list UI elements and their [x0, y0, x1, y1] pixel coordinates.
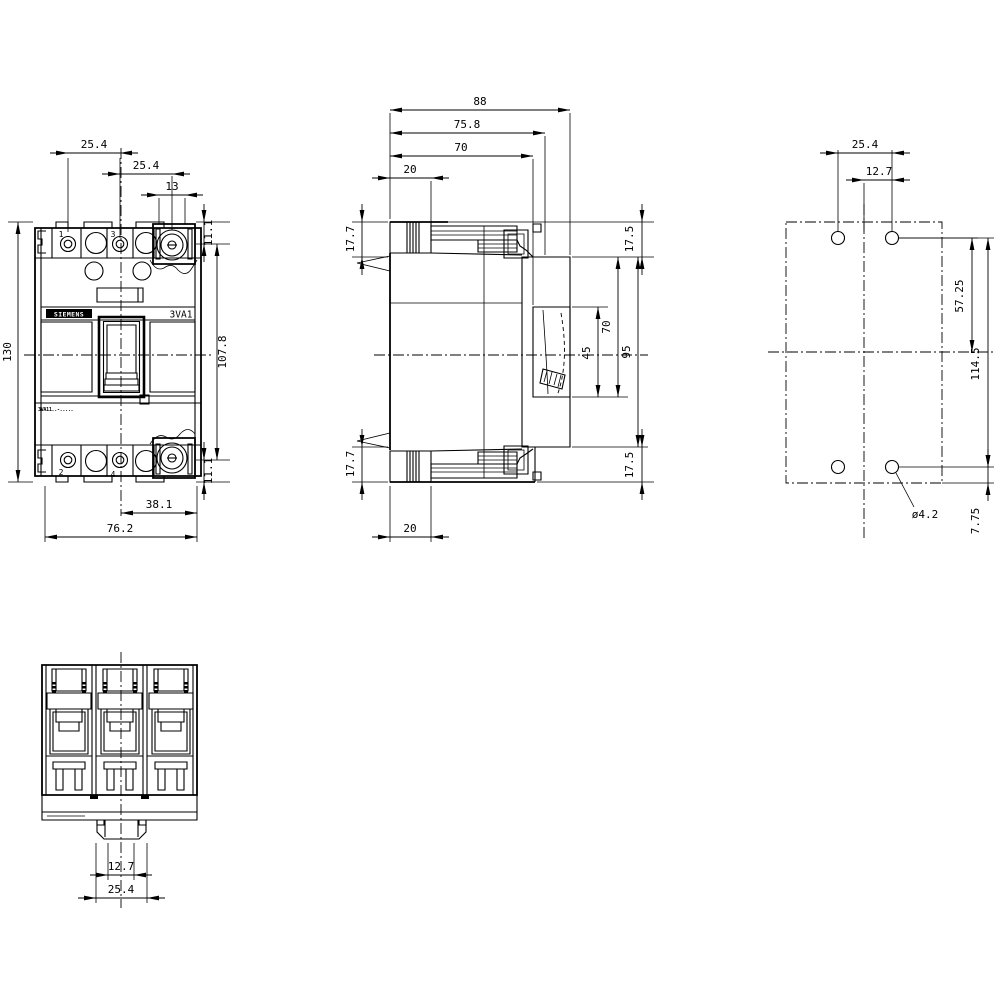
dim-front-inner-height: 107.8: [216, 335, 229, 368]
dim-bottom-rail-outer: 25.4: [108, 883, 135, 896]
dim-drill-half-pitch-x: 12.7: [866, 165, 893, 178]
bottom-pole-cells: [46, 669, 193, 790]
bottom-body-outline: [42, 665, 197, 795]
drawing-svg: 1 3 SIEMENS 3VA1: [0, 0, 1000, 1000]
side-body: [357, 222, 570, 482]
front-view: 1 3 SIEMENS 3VA1: [1, 138, 230, 542]
brand-logo-text: SIEMENS: [54, 311, 84, 319]
toggle-handle: [540, 369, 565, 389]
dim-side-terminal-height-bottom: 17.7: [344, 451, 357, 478]
terminal-label-3: 3: [111, 230, 116, 239]
dim-front-width: 76.2: [107, 522, 134, 535]
dim-side-front-offset-top: 17.5: [623, 226, 636, 253]
dim-drill-edge-offset: 7.75: [969, 508, 982, 535]
dim-front-height: 130: [1, 342, 14, 362]
dim-front-pole-pitch-1: 25.4: [81, 138, 108, 151]
dim-drill-half-pitch-y: 57.25: [953, 279, 966, 312]
mounting-hole: [886, 232, 899, 245]
terminal-label-4: 4: [111, 470, 116, 479]
dim-side-depth-case: 70: [454, 141, 467, 154]
dim-side-terminal-depth-bottom: 20: [403, 522, 416, 535]
type-code-label: 3VA11..-.....: [38, 407, 73, 413]
dim-side-cutout-height: 70: [600, 320, 613, 333]
dim-front-top-offset: 11.1: [202, 220, 215, 247]
front-top-lug-terminal: [150, 224, 197, 274]
dim-side-depth-cover: 75.8: [454, 118, 481, 131]
product-series-label: 3VA1: [170, 310, 193, 321]
mounting-hole: [832, 232, 845, 245]
front-top-terminal-row: [38, 228, 157, 258]
dim-side-terminal-height-top: 17.7: [344, 226, 357, 253]
dim-bottom-rail-inner: 12.7: [108, 860, 135, 873]
drill-dimensions: 25.4 12.7 57.25 114.5 7.75 ø4.2: [820, 138, 994, 534]
dim-side-terminal-depth-top: 20: [403, 163, 416, 176]
dim-drill-pitch-x: 25.4: [852, 138, 879, 151]
dim-front-pole-pitch-2: 25.4: [133, 159, 160, 172]
front-bottom-terminal-row: [38, 445, 157, 476]
dim-drill-hole-diameter: ø4.2: [912, 508, 939, 521]
dim-front-bottom-offset: 11.1: [202, 458, 215, 485]
dim-side-front-offset-bottom: 17.5: [623, 452, 636, 479]
side-view: 88 75.8 70 20 17.7 17.5 45: [344, 95, 654, 542]
dim-side-depth-max: 88: [473, 95, 486, 108]
mounting-hole: [886, 461, 899, 474]
dim-side-escutcheon-height: 95: [620, 345, 633, 358]
dim-front-half-width: 38.1: [146, 498, 173, 511]
dimension-drawing-canvas: 1 3 SIEMENS 3VA1: [0, 0, 1000, 1000]
dim-front-terminal-width: 13: [165, 180, 178, 193]
toggle-rocker: [99, 317, 144, 397]
terminal-label-2: 2: [59, 468, 64, 477]
front-bottom-lug-terminal: [150, 430, 195, 479]
terminal-label-1: 1: [59, 230, 64, 239]
bottom-base-and-din-foot: [42, 795, 197, 839]
dim-drill-pitch-y: 114.5: [969, 347, 982, 380]
mounting-hole: [832, 461, 845, 474]
bottom-view: 12.7 25.4: [42, 652, 197, 908]
bottom-dimensions: 12.7 25.4: [78, 843, 165, 903]
dim-side-toggle-window: 45: [580, 346, 593, 359]
drilling-plan-view: 25.4 12.7 57.25 114.5 7.75 ø4.2: [768, 138, 996, 540]
